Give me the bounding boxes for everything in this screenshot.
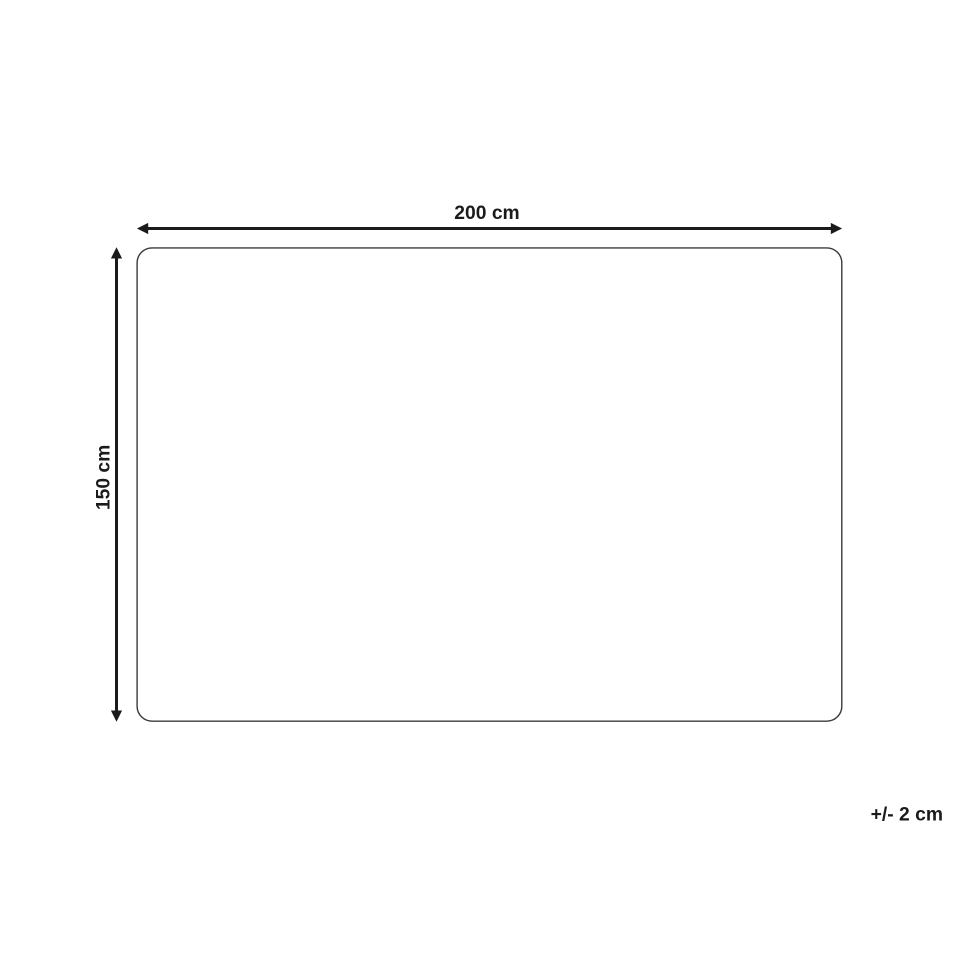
svg-text:150 cm: 150 cm [94, 445, 115, 510]
svg-text:200 cm: 200 cm [454, 203, 519, 224]
svg-text:+/- 2 cm: +/- 2 cm [871, 805, 943, 826]
